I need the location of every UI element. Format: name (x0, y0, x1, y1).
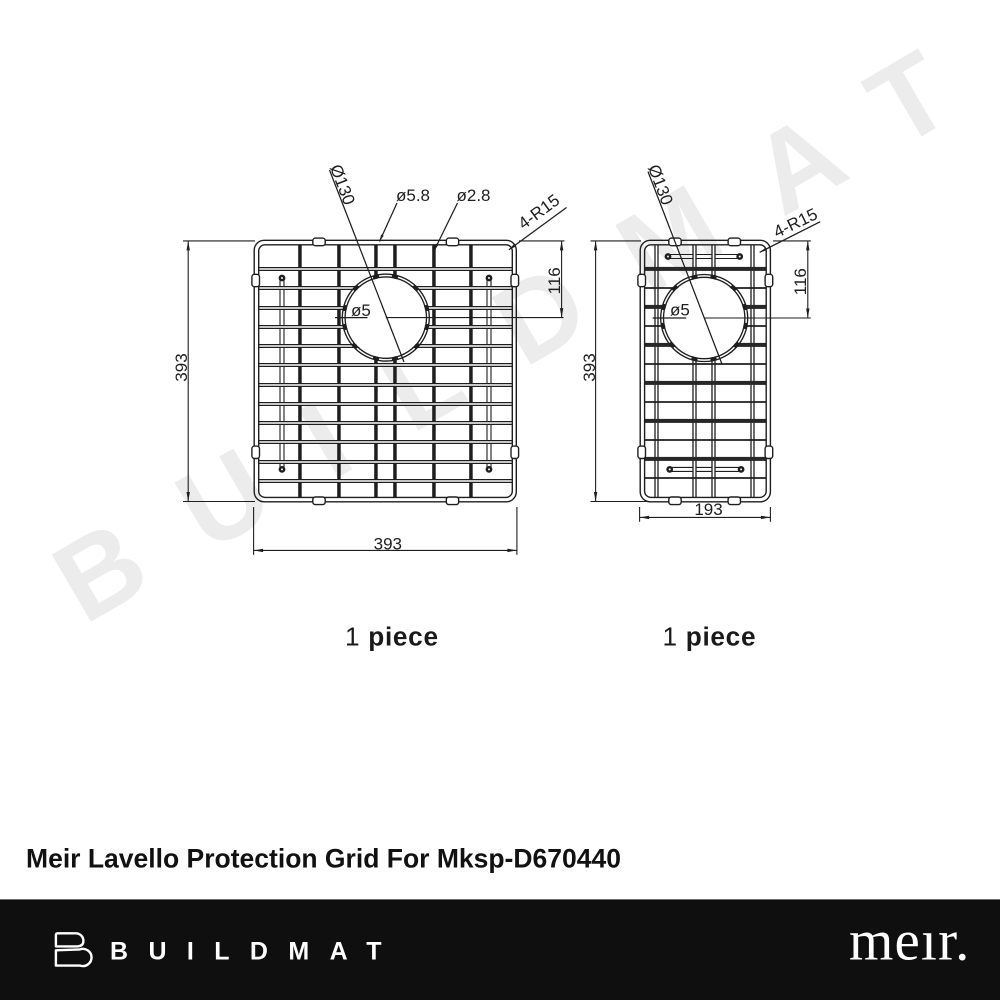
svg-text:393: 393 (374, 534, 402, 553)
svg-text:393: 393 (580, 353, 599, 381)
svg-text:meır.: meır. (849, 910, 971, 973)
svg-text:ø5.8: ø5.8 (396, 186, 430, 205)
svg-text:Meir Lavello Protection Grid F: Meir Lavello Protection Grid For Mksp-D6… (26, 844, 621, 874)
svg-text:ø2.8: ø2.8 (457, 186, 491, 205)
svg-text:193: 193 (694, 500, 722, 519)
svg-text:116: 116 (545, 267, 564, 294)
svg-text:BUILDMAT: BUILDMAT (110, 938, 402, 966)
svg-text:1 piece: 1 piece (345, 621, 439, 651)
svg-text:1 piece: 1 piece (663, 621, 757, 651)
svg-text:ø5: ø5 (351, 301, 371, 320)
svg-text:116: 116 (791, 268, 810, 295)
svg-text:393: 393 (172, 353, 191, 381)
svg-text:ø5: ø5 (670, 301, 690, 320)
